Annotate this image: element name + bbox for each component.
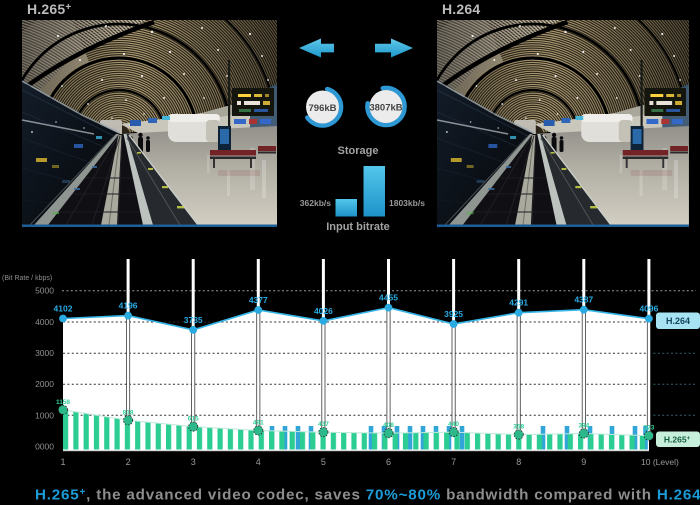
- svg-text:4387: 4387: [574, 295, 593, 305]
- svg-text:(Bit Rate / kbps): (Bit Rate / kbps): [2, 275, 52, 282]
- svg-text:0000: 0000: [35, 441, 54, 451]
- svg-text:440: 440: [448, 421, 459, 428]
- svg-text:6: 6: [386, 457, 391, 467]
- svg-text:1158: 1158: [56, 399, 70, 406]
- svg-text:4455: 4455: [379, 293, 398, 303]
- svg-text:394: 394: [578, 423, 589, 430]
- svg-text:615: 615: [188, 416, 199, 423]
- svg-text:408: 408: [383, 422, 394, 429]
- svg-text:4377: 4377: [249, 295, 268, 305]
- svg-text:2: 2: [126, 457, 131, 467]
- svg-text:4: 4: [256, 457, 261, 467]
- svg-text:H.265+: H.265+: [664, 435, 691, 445]
- svg-text:Storage: Storage: [338, 145, 379, 157]
- svg-text:362kb/s: 362kb/s: [300, 198, 331, 208]
- svg-text:4291: 4291: [509, 298, 528, 308]
- svg-text:5: 5: [321, 457, 326, 467]
- svg-text:8: 8: [516, 457, 521, 467]
- svg-text:H.264: H.264: [442, 1, 480, 17]
- svg-text:H.265+, the advanced video cod: H.265+, the advanced video codec, saves …: [35, 487, 700, 504]
- svg-text:4196: 4196: [119, 301, 138, 311]
- svg-text:3807kB: 3807kB: [369, 103, 402, 114]
- svg-text:H.264: H.264: [666, 316, 690, 326]
- svg-text:1: 1: [60, 457, 65, 467]
- svg-text:4000: 4000: [35, 317, 54, 327]
- svg-text:10 (Level): 10 (Level): [641, 457, 679, 467]
- svg-text:4096: 4096: [639, 304, 658, 314]
- svg-text:796kB: 796kB: [309, 103, 337, 114]
- svg-text:3735: 3735: [184, 315, 203, 325]
- svg-text:7: 7: [451, 457, 456, 467]
- svg-text:3000: 3000: [35, 348, 54, 358]
- svg-text:Input bitrate: Input bitrate: [326, 221, 390, 233]
- svg-text:1803kb/s: 1803kb/s: [389, 198, 425, 208]
- svg-text:1000: 1000: [35, 410, 54, 420]
- svg-text:2000: 2000: [35, 379, 54, 389]
- svg-text:437: 437: [318, 421, 329, 428]
- svg-text:323: 323: [643, 425, 654, 432]
- svg-text:818: 818: [123, 409, 134, 416]
- svg-text:4102: 4102: [54, 304, 73, 314]
- svg-text:3925: 3925: [444, 309, 463, 319]
- svg-text:H.265+: H.265+: [27, 1, 71, 17]
- svg-text:358: 358: [513, 424, 524, 431]
- svg-text:491: 491: [253, 420, 264, 427]
- svg-text:4026: 4026: [314, 306, 333, 316]
- svg-text:5000: 5000: [35, 286, 54, 296]
- svg-text:3: 3: [191, 457, 196, 467]
- svg-text:9: 9: [581, 457, 586, 467]
